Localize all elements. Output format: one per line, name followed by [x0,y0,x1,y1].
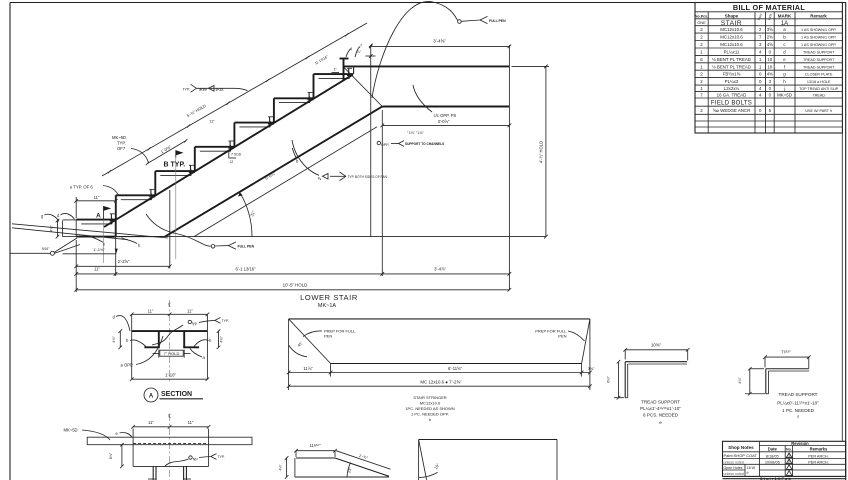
svg-text:11”: 11” [148,420,154,425]
svg-text:Open Holes: Open Holes [724,466,743,470]
svg-text:SUPPORT TO CHANNELS: SUPPORT TO CHANNELS [405,142,444,146]
svg-text:11”: 11” [188,420,194,425]
svg-text:MC12x10.6: MC12x10.6 [720,27,743,32]
svg-text:PL¼x1’-4¹¹∕¹⁶x1’-10”: PL¼x1’-4¹¹∕¹⁶x1’-10” [640,406,681,411]
svg-text:MC 12x10.6 ● 7’-2⅝”: MC 12x10.6 ● 7’-2⅝” [420,380,462,385]
svg-text:4⅛”: 4⅛” [279,464,283,471]
svg-text:1 PC. NEEDED OPP.: 1 PC. NEEDED OPP. [411,412,449,417]
svg-text:MC12x10.6: MC12x10.6 [720,35,743,40]
svg-text:OF7: OF7 [117,146,126,151]
svg-text:typ: typ [192,322,197,326]
svg-text:1PC. NEEDED AS SHOWN: 1PC. NEEDED AS SHOWN [405,406,454,411]
svg-text:3⅝: 3⅝ [767,27,773,32]
svg-text:ℂ: ℂ [168,414,172,420]
svg-text:7” HOLD: 7” HOLD [164,351,180,356]
svg-text:11⁵∕¹⁶”: 11⁵∕¹⁶” [309,443,321,448]
svg-text:PER ARCH.: PER ARCH. [808,454,828,458]
svg-text:3’-4⅞”: 3’-4⅞” [434,267,446,272]
svg-text:ℂ: ℂ [168,303,172,309]
svg-text:c/c OPP. PS: c/c OPP. PS [434,113,457,118]
svg-text:No.: No. [786,448,792,452]
svg-text:TREAD: TREAD [812,94,825,98]
svg-text:1: 1 [788,454,790,458]
svg-text:STAIR: STAIR [721,20,742,27]
svg-text:MK~1A: MK~1A [318,303,337,309]
svg-text:6 PCS. NEEDED: 6 PCS. NEEDED [643,413,679,418]
svg-text:4⅛”: 4⅛” [738,376,742,383]
svg-text:MC12x10.6: MC12x10.6 [420,401,441,406]
svg-text:TOP TREAD ANTI SLIP: TOP TREAD ANTI SLIP [799,87,839,91]
svg-text:7⁵∕¹⁶”: 7⁵∕¹⁶” [781,350,791,355]
svg-text:1’-1⅝”: 1’-1⅝” [93,247,105,252]
svg-text:FIELD BOLTS: FIELD BOLTS [711,101,752,107]
svg-text:13/16 ⌀ HOLE: 13/16 ⌀ HOLE [807,80,831,84]
svg-text:PER ARCH.: PER ARCH. [808,460,828,464]
svg-text:1 AS SHOWN/1 OPP.: 1 AS SHOWN/1 OPP. [801,36,836,40]
svg-text:PL¼x0’-11⁷∕¹⁶x1’-10”: PL¼x0’-11⁷∕¹⁶x1’-10” [777,401,819,406]
svg-text:Revision: Revision [791,441,809,446]
svg-text:8/18/05: 8/18/05 [766,454,779,458]
svg-text:FULL PEN: FULL PEN [238,244,255,248]
svg-text:2: 2 [788,460,790,464]
svg-text:j: j [783,86,785,91]
svg-text:10: 10 [767,57,772,62]
svg-text:4⅝”: 4⅝” [220,335,224,342]
svg-text:Date: Date [768,447,778,452]
svg-text:⅝⌀ WEDGE ANCR: ⅝⌀ WEDGE ANCR [713,108,751,113]
svg-text:2’-2⅝”: 2’-2⅝” [118,259,130,264]
svg-text:No.Pcs.: No.Pcs. [695,14,708,18]
svg-text:MC12x10.6: MC12x10.6 [720,42,743,47]
svg-text:Remark: Remark [810,14,827,19]
svg-text:1 PC. NEEDED: 1 PC. NEEDED [782,408,815,413]
svg-text:6’-11⅝”: 6’-11⅝” [448,366,462,371]
svg-text:B TYP.: B TYP. [164,162,186,169]
svg-text:BILL OF MATERIAL: BILL OF MATERIAL [733,3,805,12]
svg-text:⌜1⅛” ⌜1⅛”: ⌜1⅛” ⌜1⅛” [407,130,425,135]
svg-text:11⅞”: 11⅞” [303,366,313,371]
svg-text:unless noted: unless noted [724,460,744,464]
svg-text:⅛ BENT PL TREAD: ⅛ BENT PL TREAD [712,57,751,62]
svg-text:PEN: PEN [558,334,566,339]
svg-text:4⅝”: 4⅝” [112,335,116,342]
svg-text:TYP.: TYP. [117,141,126,146]
svg-text:3’-4⅝”: 3’-4⅝” [433,39,446,44]
svg-text:1 AS SHOWN/1 OPP.: 1 AS SHOWN/1 OPP. [801,28,836,32]
svg-text:11”: 11” [94,267,100,272]
svg-text:10’-5” HOLD: 10’-5” HOLD [283,283,308,288]
svg-text:TYP. BOTH SIDES OF PAN: TYP. BOTH SIDES OF PAN [348,175,388,179]
svg-text:11”: 11” [148,308,154,313]
svg-text:MK~5D: MK~5D [64,428,78,433]
svg-text:2⅝: 2⅝ [767,35,773,40]
svg-text:USE W/ PART h: USE W/ PART h [805,109,832,113]
svg-text:L2x2x¼: L2x2x¼ [724,86,740,91]
svg-text:Shop Notes: Shop Notes [728,445,754,450]
svg-text:3⅝”: 3⅝” [588,367,595,371]
svg-text:e TYP. OF 6: e TYP. OF 6 [70,184,93,189]
svg-text:unless noted: unless noted [724,472,744,476]
svg-text:CLOSER PLATE: CLOSER PLATE [805,73,833,77]
svg-text:a OPP.: a OPP. [121,363,134,368]
svg-text:PL¼x3: PL¼x3 [725,79,739,84]
svg-text:6⅛”: 6⅛” [607,375,611,382]
svg-text:1A: 1A [781,21,788,27]
svg-text:7 5/16: 7 5/16 [231,153,241,157]
svg-text:MK=5D: MK=5D [777,93,792,98]
svg-text:e: e [659,420,662,425]
svg-text:A: A [149,394,154,400]
svg-text:S t a i r 1 A F a b: S t a i r 1 A F a b [760,476,791,480]
svg-text:16 GA. TREAD: 16 GA. TREAD [717,93,747,98]
svg-text:typ: typ [193,457,198,461]
svg-text:LOWER STAIR: LOWER STAIR [300,293,358,302]
svg-text:1’-10”: 1’-10” [165,373,176,378]
svg-text:TREAD SUPPORT: TREAD SUPPORT [803,50,835,54]
svg-text:3’-0⅞”: 3’-0⅞” [438,119,450,124]
svg-text:TREAD SUPPORT: TREAD SUPPORT [641,400,680,405]
svg-text:TREAD SUPPORT: TREAD SUPPORT [803,58,835,62]
svg-text:MK~5D: MK~5D [112,135,126,140]
svg-text:FULL PEN: FULL PEN [489,19,506,23]
svg-text:10: 10 [767,64,772,69]
svg-text:MARK: MARK [778,14,792,19]
svg-text:13/16: 13/16 [747,466,756,470]
svg-text:PEN: PEN [324,334,332,339]
svg-text:12: 12 [230,160,234,164]
svg-text:TYP.: TYP. [222,319,229,323]
svg-text:TREAD SUPPORT: TREAD SUPPORT [779,392,818,397]
svg-text:11”: 11” [187,308,193,313]
svg-text:Paint:SHOP COAT: Paint:SHOP COAT [724,453,758,458]
svg-text:10/08/05: 10/08/05 [765,460,780,464]
svg-text:PL¼x11: PL¼x11 [724,49,740,54]
svg-text:4⅝”: 4⅝” [50,224,54,231]
svg-text:6⅝”: 6⅝” [109,452,113,459]
svg-text:4’-½” HOLD: 4’-½” HOLD [538,141,543,163]
svg-text:10⅝”: 10⅝” [651,342,662,347]
svg-text:TREAD SUPPORT: TREAD SUPPORT [803,65,835,69]
svg-text:4⅝: 4⅝ [767,42,773,47]
svg-text:3-12: 3-12 [216,86,225,91]
svg-text:5/16”: 5/16” [42,247,49,251]
svg-text:⌀: ⌀ [747,471,749,475]
svg-text:TYP.: TYP. [218,455,225,459]
svg-text:Remarks: Remarks [810,447,828,452]
svg-text:TYP.: TYP. [182,88,190,92]
svg-text:FB½x1⅝: FB½x1⅝ [723,72,741,77]
svg-text:A: A [96,213,101,220]
svg-text:3/16: 3/16 [199,86,208,91]
svg-text:j: j [350,46,352,51]
svg-text:11”: 11” [209,119,215,124]
svg-text:⅛ BENT PL TREAD: ⅛ BENT PL TREAD [712,64,751,69]
svg-text:SECTION: SECTION [161,391,192,398]
svg-text:Shape: Shape [725,14,739,19]
svg-text:4⅝: 4⅝ [767,72,773,77]
svg-text:ONE: ONE [697,21,706,25]
svg-text:11”: 11” [94,195,100,200]
svg-text:STAIR STRINGER: STAIR STRINGER [413,395,446,400]
svg-text:6’-1 13/16”: 6’-1 13/16” [235,267,256,272]
svg-text:1 AS SHOWN/1 OPP.: 1 AS SHOWN/1 OPP. [801,43,836,47]
